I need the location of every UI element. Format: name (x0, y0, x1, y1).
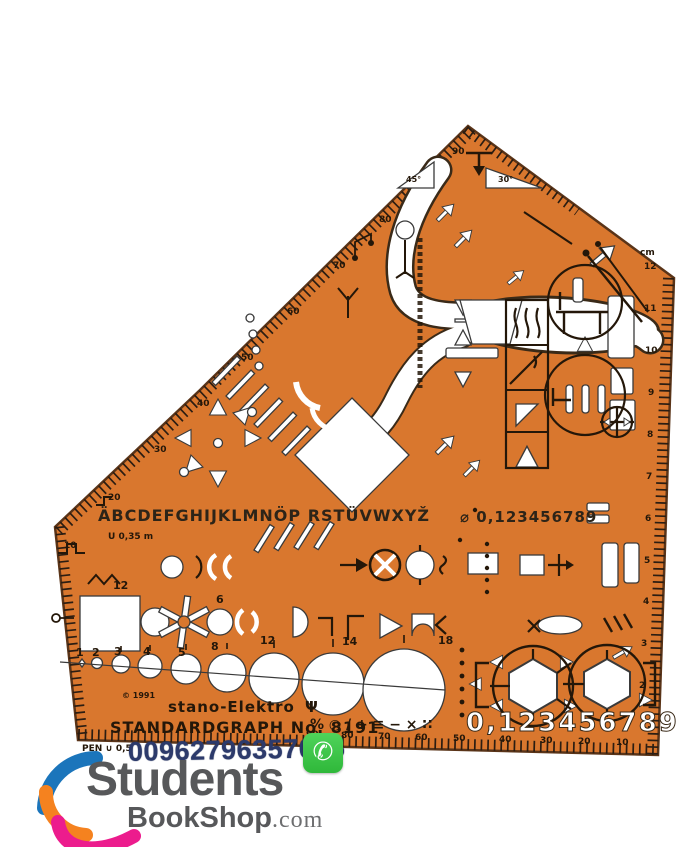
ruler-left-60: 60 (287, 307, 300, 317)
logo-com: .com (272, 807, 323, 833)
ruler-right-4: 4 (643, 597, 649, 607)
copyright: © 1991 (122, 691, 155, 700)
ruler-bottom-50: 50 (453, 734, 466, 744)
circle-label-3: 3 (114, 645, 122, 658)
circle-label-5: 5 (178, 646, 186, 659)
ruler-bottom-60: 60 (415, 733, 428, 743)
ruler-left-10: 10 (64, 541, 77, 551)
ruler-right-2: 2 (639, 681, 645, 691)
digits-large: 0,123456789 (466, 708, 679, 738)
brand-name: stano-Elektro (168, 698, 295, 716)
angle-30: 30° (498, 175, 513, 184)
logo-bookshop-text: BookShop (127, 802, 272, 834)
ruler-left-40: 40 (197, 399, 210, 409)
circle-label-1: 1 (76, 646, 84, 659)
brand-mark: Ψ (305, 698, 319, 716)
logo-students: Students (86, 752, 283, 807)
ruler-bottom-70: 70 (378, 732, 391, 742)
ruler-left-30: 30 (154, 445, 167, 455)
circle-label-12: 12 (260, 634, 275, 647)
ruler-left-20: 20 (108, 493, 121, 503)
stencil-template-graphic: 90 45° 30° cm 80 70 60 50 40 30 20 10 90… (0, 0, 680, 847)
circle-label-14: 14 (342, 635, 358, 648)
product-photo: 90 45° 30° cm 80 70 60 50 40 30 20 10 90… (0, 0, 680, 847)
circle-label-4: 4 (143, 645, 151, 658)
ruler-left-50: 50 (241, 353, 254, 363)
square-label: 12 (113, 579, 128, 592)
circle-label-18: 18 (438, 634, 453, 647)
ruler-left-80: 80 (379, 215, 392, 225)
ruler-right-6: 6 (645, 514, 651, 524)
ruler-right-12: 12 (644, 262, 657, 272)
ruler-right-5: 5 (644, 556, 650, 566)
digits-small: ⌀ 0,123456789 (460, 508, 597, 526)
logo-bookshop: BookShop.com (127, 802, 323, 835)
alphabet-row: ÄBCDEFGHIJKLMNÖP RSTÜVWXYŽ (98, 506, 430, 525)
line-gauge: U 0,35 m (108, 532, 153, 542)
ruler-right-9: 9 (648, 388, 654, 398)
unit-cm: cm (640, 248, 655, 258)
whatsapp-phone-glyph: ✆ (313, 740, 334, 765)
ruler-left-70: 70 (333, 261, 346, 271)
angle-45: 45° (406, 175, 421, 184)
ruler-bottom-20: 20 (578, 737, 591, 747)
circle-label-2: 2 (92, 646, 100, 659)
whatsapp-icon: ✆ (303, 733, 343, 773)
circle6-label: 6 (216, 593, 224, 606)
circle-label-8: 8 (211, 640, 219, 653)
ruler-right-7: 7 (646, 472, 652, 482)
ruler-right-11: 11 (644, 304, 657, 314)
ruler-bottom-10: 10 (616, 738, 629, 748)
ruler-right-8: 8 (647, 430, 653, 440)
apex-90: 90 (452, 147, 465, 157)
ruler-right-3: 3 (641, 639, 647, 649)
ruler-right-10: 10 (645, 346, 658, 356)
